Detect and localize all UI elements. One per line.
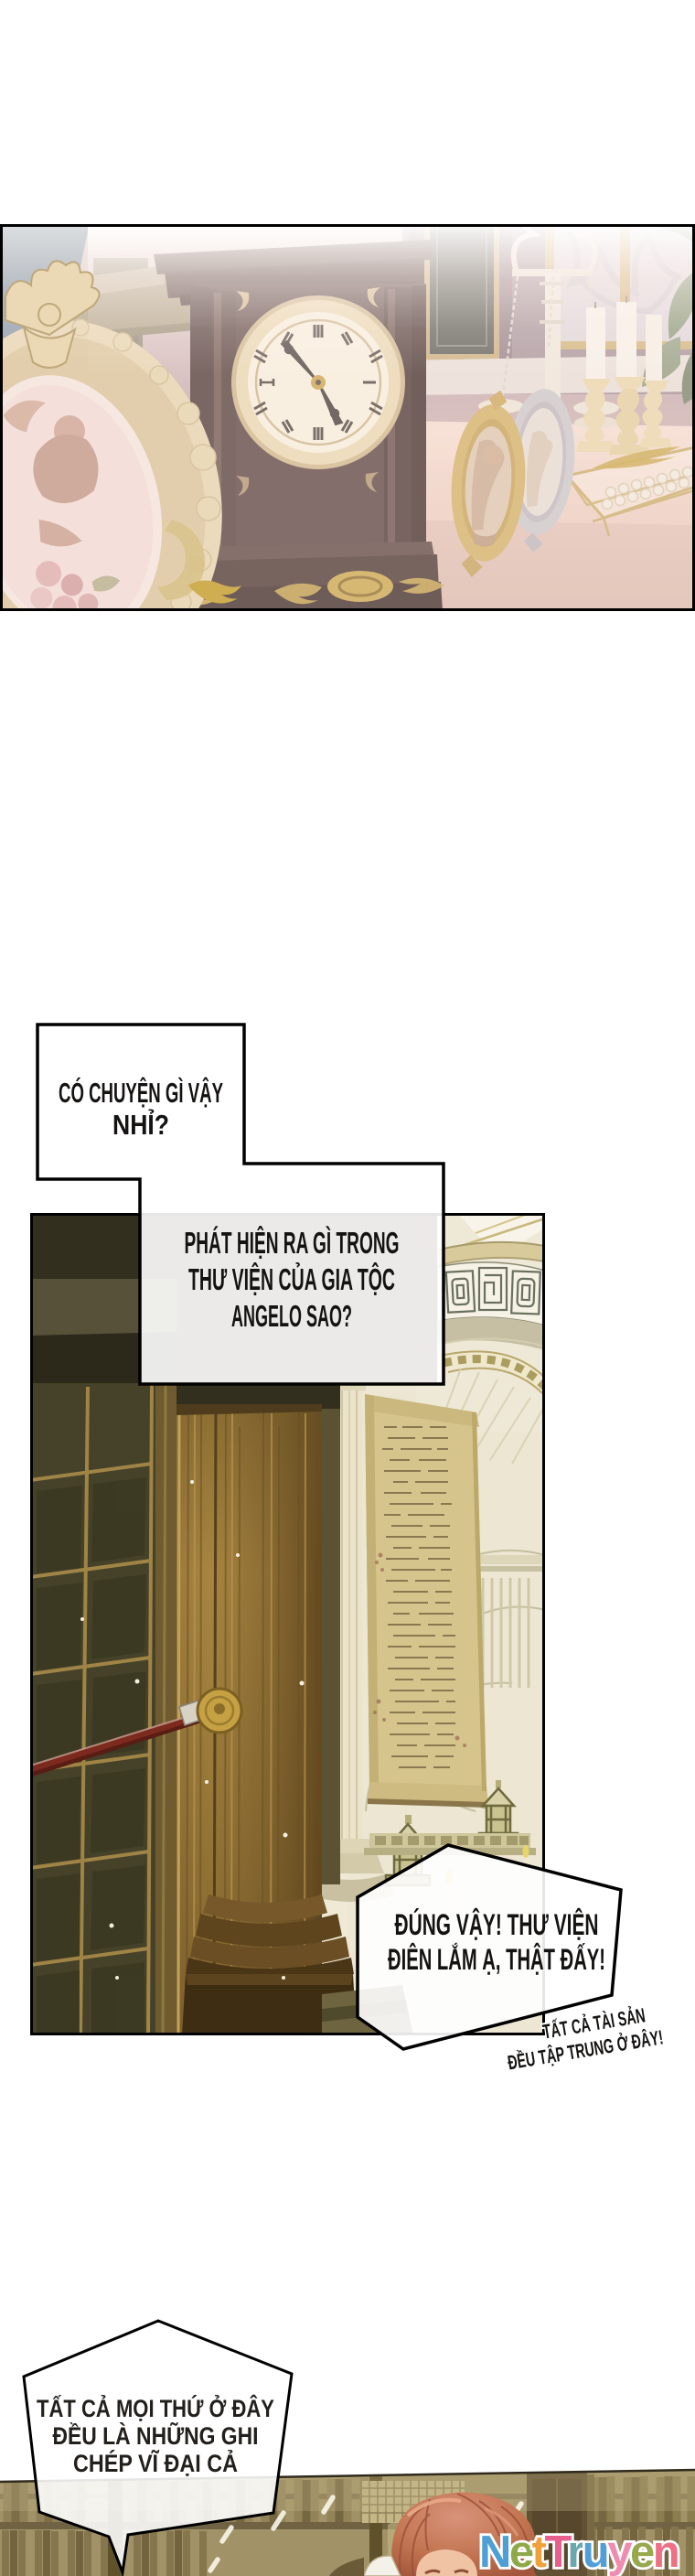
svg-text:ĐỀU LÀ NHỮNG GHI: ĐỀU LÀ NHỮNG GHI xyxy=(53,2421,259,2450)
svg-text:ANGELO SAO?: ANGELO SAO? xyxy=(231,1299,352,1333)
svg-text:ĐIÊN LẮM Ạ, THẬT ĐẤY!: ĐIÊN LẮM Ạ, THẬT ĐẤY! xyxy=(388,1943,605,1976)
svg-text:NHỈ?: NHỈ? xyxy=(112,1109,169,1141)
svg-text:NetTruyen: NetTruyen xyxy=(479,2528,678,2576)
svg-text:ĐÚNG VẬY! THƯ VIỆN: ĐÚNG VẬY! THƯ VIỆN xyxy=(395,1908,599,1941)
svg-text:PHÁT HIỆN RA GÌ TRONG: PHÁT HIỆN RA GÌ TRONG xyxy=(185,1226,400,1260)
svg-text:CÓ CHUYỆN GÌ VẬY: CÓ CHUYỆN GÌ VẬY xyxy=(59,1076,223,1109)
svg-text:THƯ VIỆN CỦA GIA TỘC: THƯ VIỆN CỦA GIA TỘC xyxy=(188,1261,395,1296)
svg-text:CHÉP VĨ ĐẠI CẢ: CHÉP VĨ ĐẠI CẢ xyxy=(73,2448,238,2477)
svg-text:TẤT CẢ MỌI THỨ Ở ĐÂY: TẤT CẢ MỌI THỨ Ở ĐÂY xyxy=(37,2393,274,2422)
